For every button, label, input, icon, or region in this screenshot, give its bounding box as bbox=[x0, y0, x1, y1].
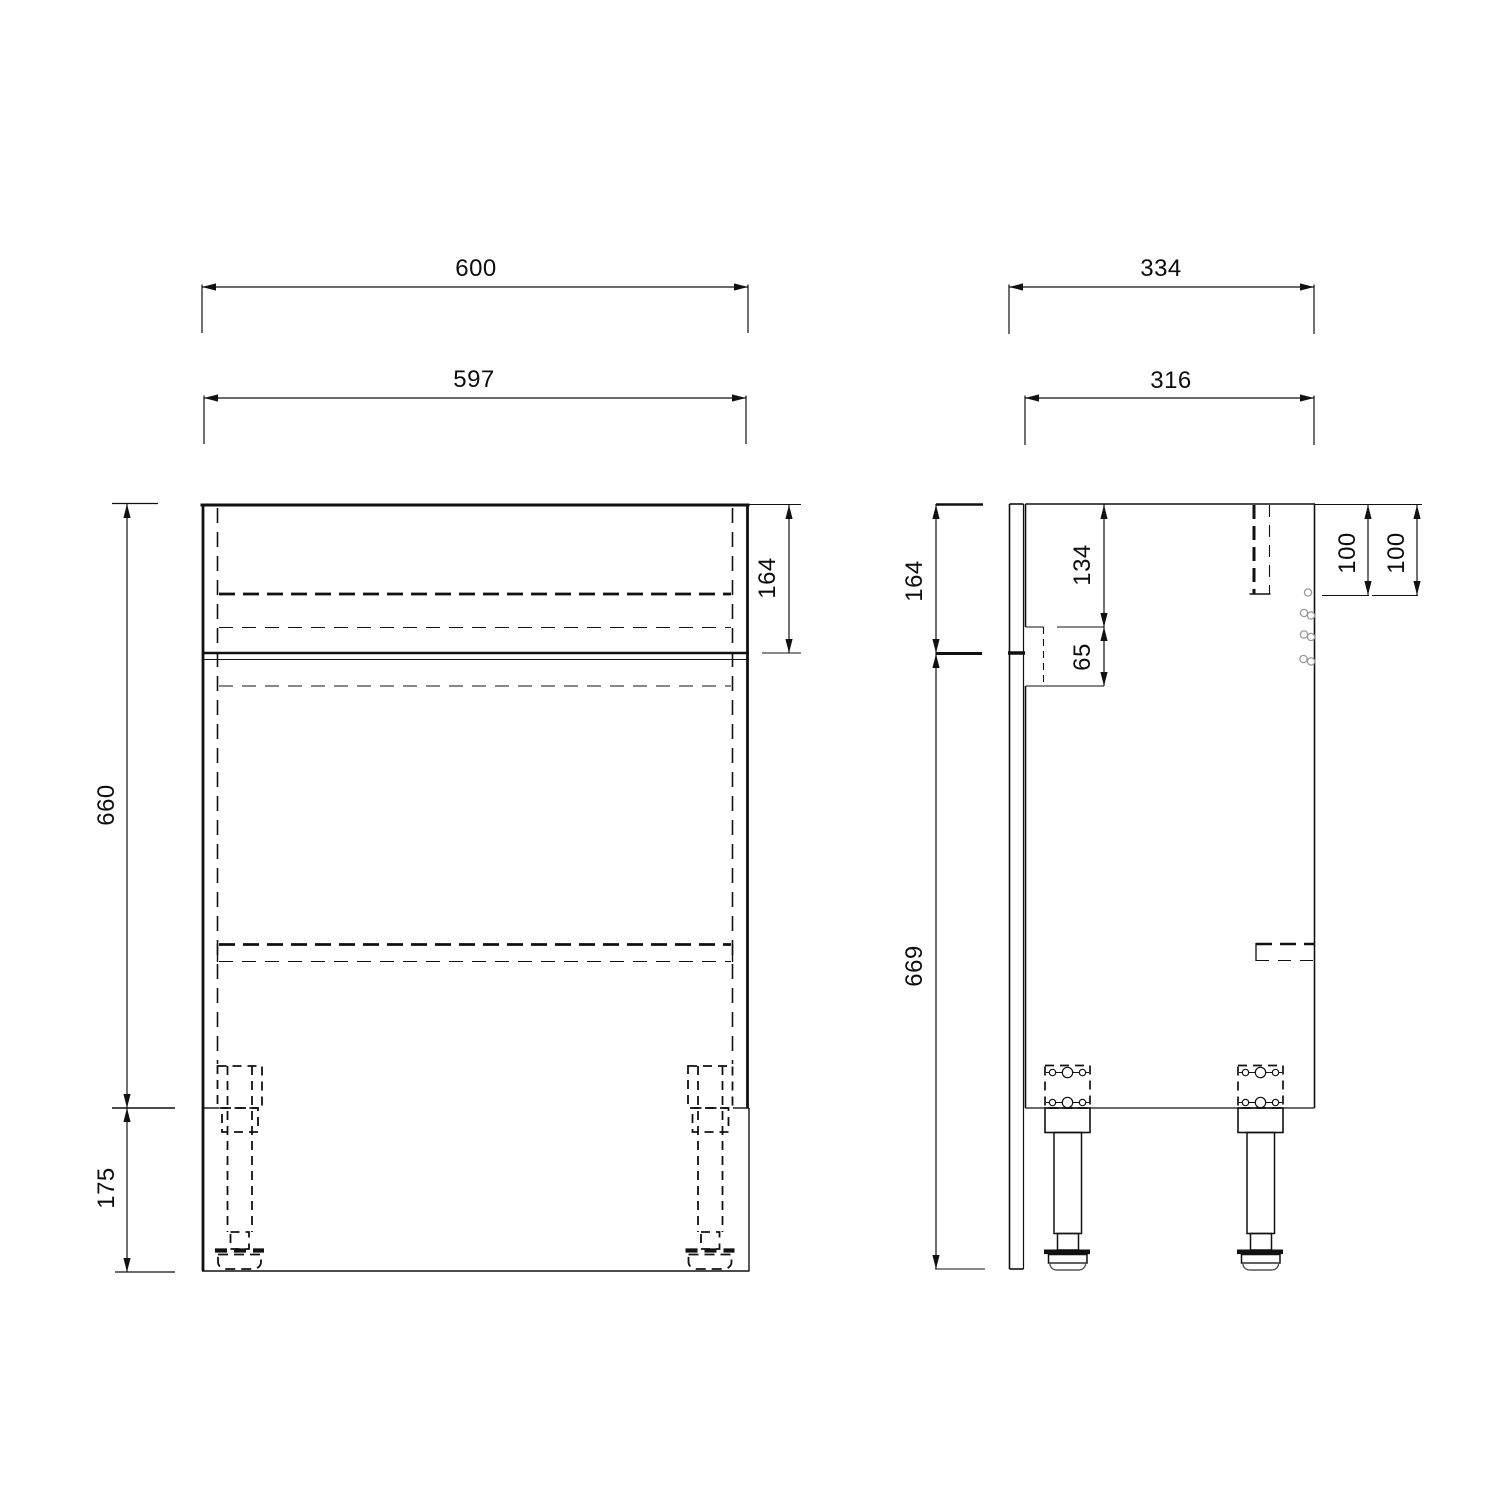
side-right-leg bbox=[1237, 1066, 1283, 1271]
front-left-leg bbox=[215, 1066, 264, 1269]
side-cross-rail bbox=[1256, 943, 1315, 961]
front-dim-leg-height bbox=[115, 1108, 175, 1272]
side-dim-overall-depth bbox=[1009, 283, 1314, 334]
dim-label-side-overall-depth: 334 bbox=[1140, 257, 1182, 281]
side-drawer-bracket bbox=[1250, 505, 1271, 594]
dim-label-front-overall-width: 600 bbox=[455, 257, 497, 281]
side-back-rail bbox=[1008, 504, 1025, 1269]
drawing-page: 600 597 164 660 175 334 316 164 669 134 … bbox=[0, 0, 1500, 1500]
dim-label-side-panel-depth: 316 bbox=[1150, 369, 1192, 393]
side-left-leg bbox=[1044, 1066, 1090, 1271]
side-screw-holes bbox=[1300, 589, 1315, 665]
dim-label-front-carcass-height: 660 bbox=[95, 784, 119, 826]
dim-label-side-top-section: 164 bbox=[903, 560, 927, 602]
front-dim-carcass-width bbox=[204, 394, 746, 444]
side-dim-body-height bbox=[932, 654, 985, 1269]
dim-label-front-leg-height: 175 bbox=[95, 1167, 119, 1209]
front-hidden-shelf bbox=[218, 944, 733, 962]
front-right-leg bbox=[686, 1066, 735, 1269]
dim-label-side-body-height: 669 bbox=[903, 945, 927, 987]
dim-label-side-cutout-height: 65 bbox=[1071, 643, 1095, 671]
front-cabinet-outline bbox=[201, 505, 802, 1272]
side-panel-outline bbox=[1026, 504, 1423, 1108]
side-dim-panel-depth bbox=[1025, 394, 1314, 445]
front-view bbox=[112, 283, 801, 1272]
dim-label-side-cutout-offset: 134 bbox=[1071, 544, 1095, 586]
dim-label-front-drawer-height: 164 bbox=[756, 557, 780, 599]
dim-label-side-hole-offset-front: 100 bbox=[1336, 532, 1360, 574]
front-hidden-drawer-lines bbox=[218, 508, 733, 1064]
dim-label-front-carcass-width: 597 bbox=[453, 368, 495, 392]
front-dim-carcass-height bbox=[112, 504, 175, 1273]
drawing-canvas bbox=[0, 0, 1500, 1500]
front-dim-overall-width bbox=[202, 283, 748, 333]
side-view bbox=[932, 283, 1422, 1270]
side-dim-top-section bbox=[932, 504, 983, 1269]
dim-label-side-hole-offset-back: 100 bbox=[1385, 532, 1409, 574]
